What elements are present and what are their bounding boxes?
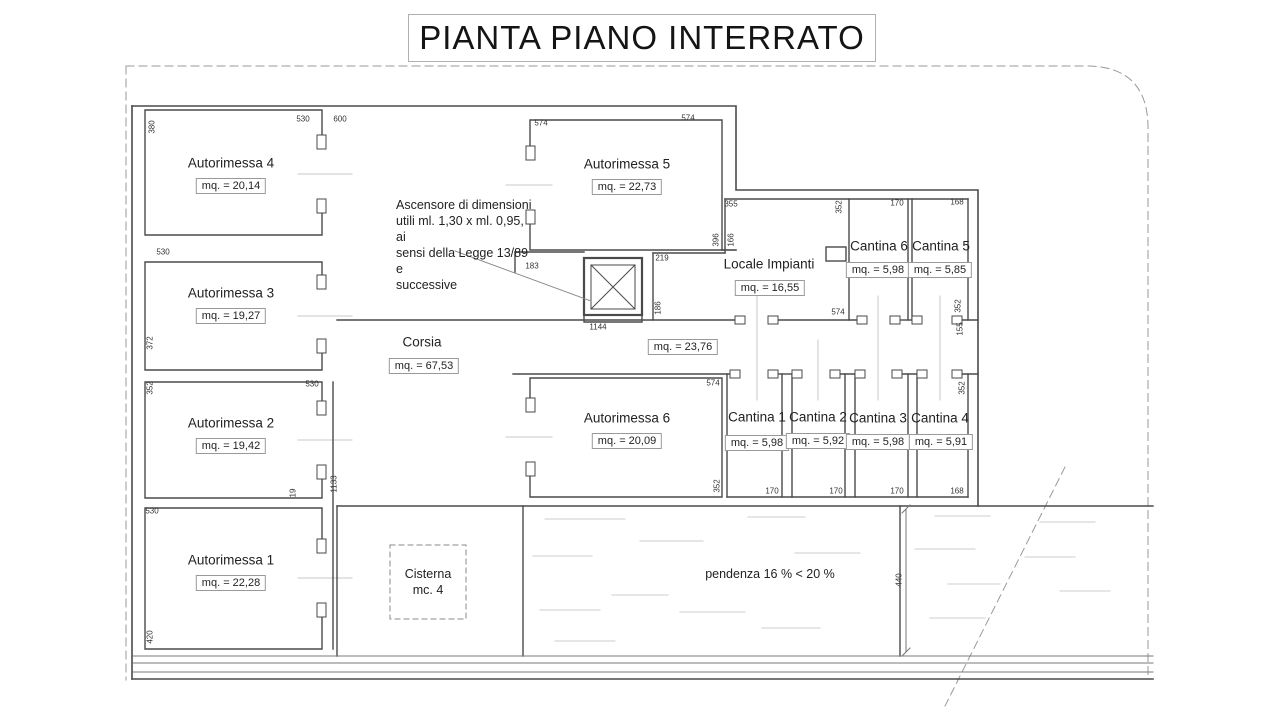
area-label-autorimessa-4: mq. = 20,14 xyxy=(196,178,266,194)
dim-label: 530 xyxy=(156,248,169,257)
dim-label: 19 xyxy=(289,489,298,498)
room-label-autorimessa-2: Autorimessa 2 xyxy=(188,416,274,431)
area-label-cantina-4: mq. = 5,91 xyxy=(909,434,973,450)
road-lines xyxy=(132,656,1153,679)
dim-label: 352 xyxy=(835,200,844,213)
room-label-cantina-6: Cantina 6 xyxy=(850,239,908,254)
dim-label: 530 xyxy=(296,115,309,124)
dim-label: 219 xyxy=(655,254,668,263)
area-label-locale-impianti: mq. = 16,55 xyxy=(735,280,805,296)
locale-impianti-equipment-box xyxy=(826,247,846,261)
area-label-autorimessa-1: mq. = 22,28 xyxy=(196,575,266,591)
room-label-cantina-1: Cantina 1 xyxy=(728,410,786,425)
room-label-cantina-4: Cantina 4 xyxy=(911,411,969,426)
area-label-autorimessa-6: mq. = 20,09 xyxy=(592,433,662,449)
dim-label: 352 xyxy=(954,299,963,312)
area-label-autorimessa-3: mq. = 19,27 xyxy=(196,308,266,324)
dim-label: 530 xyxy=(145,507,158,516)
elevator-x-icon xyxy=(591,265,635,309)
room-label-cantina-2: Cantina 2 xyxy=(789,410,847,425)
room-label-autorimessa-6: Autorimessa 6 xyxy=(584,411,670,426)
dim-label: 1133 xyxy=(330,475,339,492)
area-label-cantina-1: mq. = 5,98 xyxy=(725,435,789,451)
area-label-cantina-3: mq. = 5,98 xyxy=(846,434,910,450)
area-label-cantina-2: mq. = 5,92 xyxy=(786,433,850,449)
dim-label: 420 xyxy=(146,630,155,643)
door-centerlines xyxy=(298,174,940,578)
area-label-cantina-5: mq. = 5,85 xyxy=(908,262,972,278)
dim-label: 440 xyxy=(895,573,904,586)
dim-label: 352 xyxy=(146,381,155,394)
dim-label: 166 xyxy=(727,233,736,246)
room-label-autorimessa-5: Autorimessa 5 xyxy=(584,157,670,172)
dim-label: 396 xyxy=(712,233,721,246)
dim-label: 1144 xyxy=(589,323,606,332)
dim-label: 170 xyxy=(890,487,903,496)
dim-label: 352 xyxy=(958,381,967,394)
dim-label: 355 xyxy=(724,200,737,209)
dim-label: 574 xyxy=(534,119,547,128)
dim-label: 170 xyxy=(765,487,778,496)
elevator-accessibility-note: Ascensore di dimensioni utili ml. 1,30 x… xyxy=(396,197,536,293)
area-label-autorimessa-5: mq. = 22,73 xyxy=(592,179,662,195)
dim-label: 530 xyxy=(305,380,318,389)
room-label-autorimessa-3: Autorimessa 3 xyxy=(188,286,274,301)
floor-plan-drawing xyxy=(0,0,1280,720)
area-label-autorimessa-2: mq. = 19,42 xyxy=(196,438,266,454)
dim-label: 170 xyxy=(829,487,842,496)
area-label-cantina-6: mq. = 5,98 xyxy=(846,262,910,278)
dim-label: 600 xyxy=(333,115,346,124)
dim-label: 168 xyxy=(950,198,963,207)
dim-label: 380 xyxy=(148,120,157,133)
cisterna-label: Cisterna mc. 4 xyxy=(405,566,452,598)
area-label-corsia: mq. = 67,53 xyxy=(389,358,459,374)
room-label-locale-impianti: Locale Impianti xyxy=(724,257,815,272)
dim-label: 155 xyxy=(956,322,965,335)
dim-label: 574 xyxy=(681,114,694,123)
dim-label: 352 xyxy=(713,479,722,492)
dim-label: 168 xyxy=(950,487,963,496)
floor-plan-page: PIANTA PIANO INTERRATO xyxy=(0,0,1280,720)
dim-label: 372 xyxy=(146,336,155,349)
room-label-cantina-3: Cantina 3 xyxy=(849,411,907,426)
room-label-autorimessa-1: Autorimessa 1 xyxy=(188,553,274,568)
ramp-slope-label: pendenza 16 % < 20 % xyxy=(705,566,835,582)
dim-label: 574 xyxy=(831,308,844,317)
room-label-autorimessa-4: Autorimessa 4 xyxy=(188,156,274,171)
dim-label: 170 xyxy=(890,199,903,208)
dim-label: 574 xyxy=(706,379,719,388)
area-label-corridoio: mq. = 23,76 xyxy=(648,339,718,355)
room-label-corsia: Corsia xyxy=(402,335,441,350)
room-label-cantina-5: Cantina 5 xyxy=(912,239,970,254)
dim-label: 186 xyxy=(654,301,663,314)
